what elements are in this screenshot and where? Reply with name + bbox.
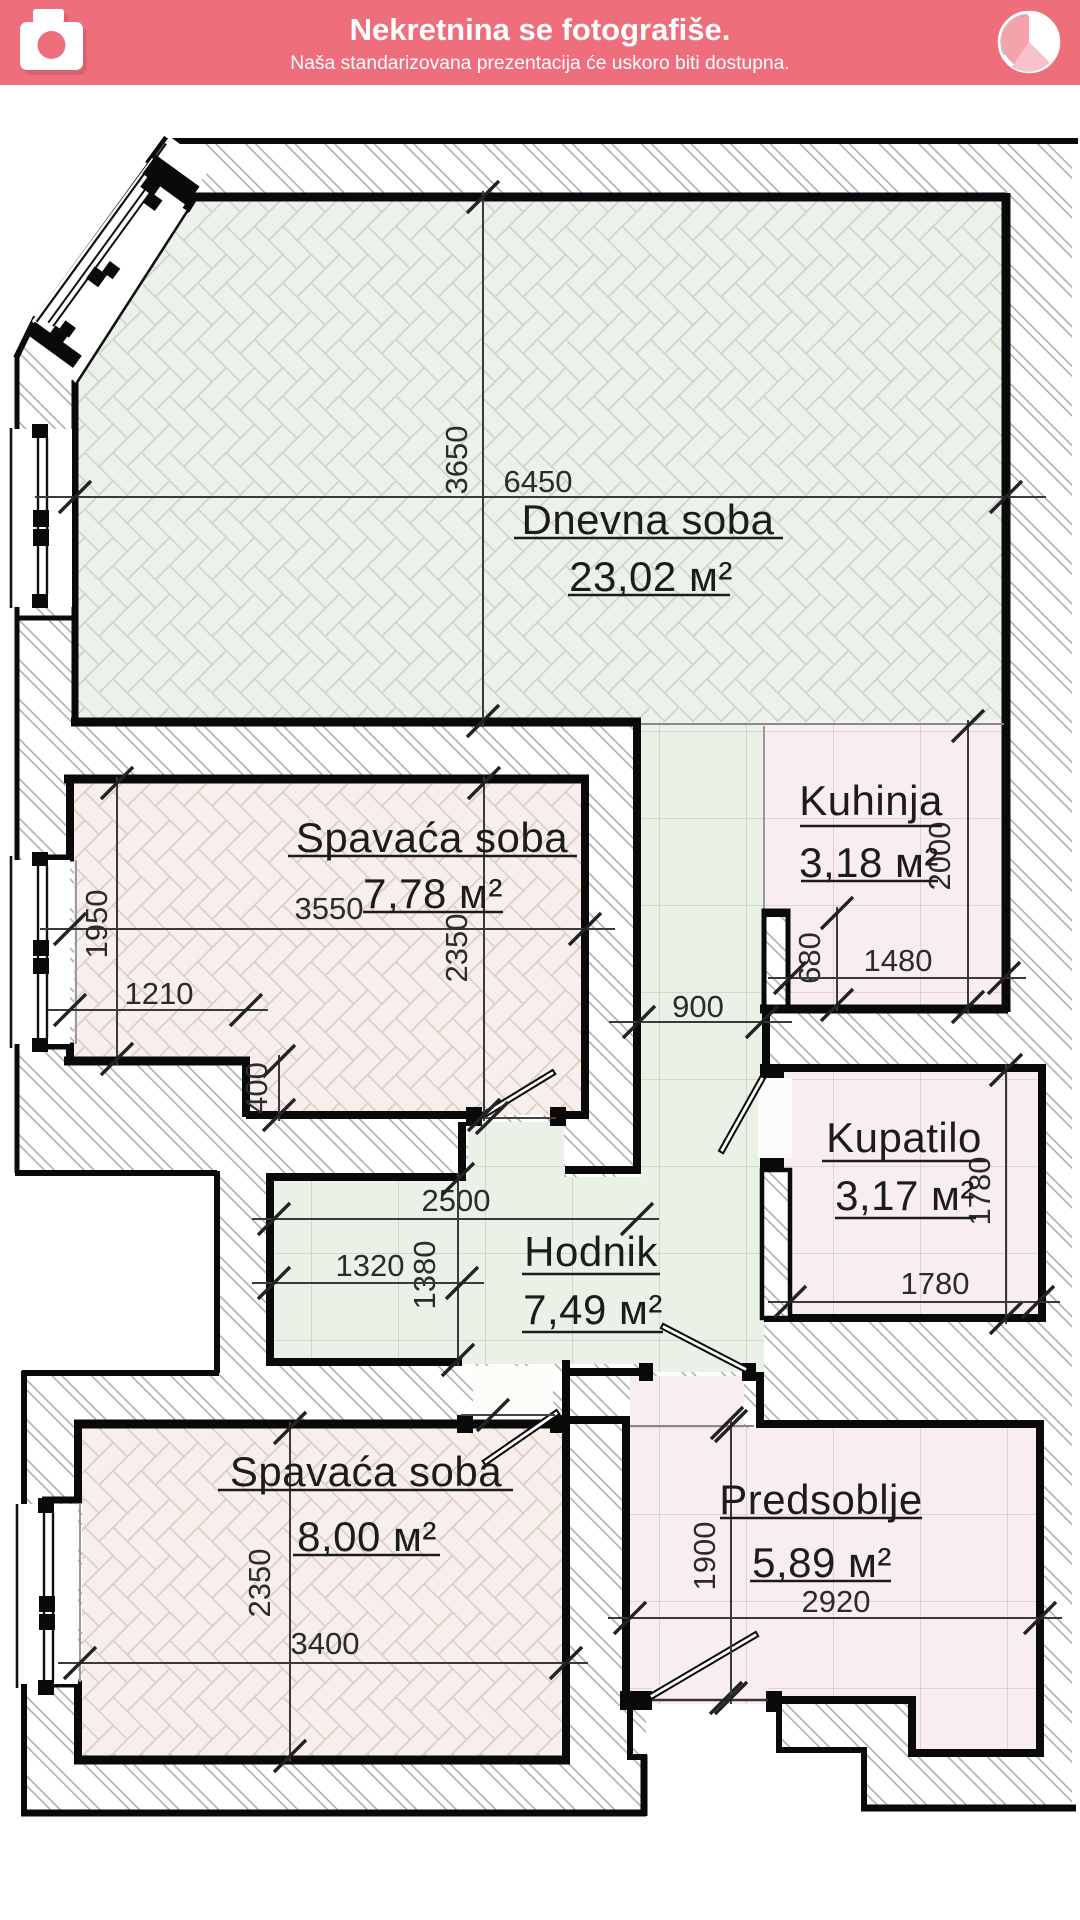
svg-text:6450: 6450 [504,464,573,499]
svg-text:1480: 1480 [864,943,933,978]
svg-text:680: 680 [792,932,827,984]
svg-text:1780: 1780 [901,1266,970,1301]
svg-text:1380: 1380 [407,1241,442,1310]
svg-text:Kuhinja: Kuhinja [799,777,943,824]
svg-text:23,02 м²: 23,02 м² [569,553,733,600]
svg-text:3550: 3550 [295,891,364,926]
svg-text:Spavaća soba: Spavaća soba [230,1448,502,1495]
svg-text:7,49 м²: 7,49 м² [523,1286,663,1333]
svg-text:2350: 2350 [439,914,474,983]
svg-text:1210: 1210 [125,976,194,1011]
svg-text:7,78 м²: 7,78 м² [363,870,503,917]
svg-text:1900: 1900 [687,1522,722,1591]
svg-text:3,17 м²: 3,17 м² [835,1172,975,1219]
svg-text:1320: 1320 [336,1248,405,1283]
svg-text:Predsoblje: Predsoblje [719,1476,922,1523]
svg-text:2920: 2920 [802,1584,871,1619]
svg-text:3400: 3400 [291,1626,360,1661]
svg-text:Hodnik: Hodnik [524,1228,658,1275]
svg-text:400: 400 [239,1062,274,1114]
svg-text:5,89 м²: 5,89 м² [752,1539,892,1586]
svg-text:Dnevna soba: Dnevna soba [521,496,774,543]
svg-text:3650: 3650 [439,426,474,495]
svg-text:Spavaća soba: Spavaća soba [296,814,568,861]
svg-text:1950: 1950 [79,890,114,959]
svg-text:900: 900 [672,989,724,1024]
svg-text:3,18 м²: 3,18 м² [799,839,939,886]
svg-text:8,00 м²: 8,00 м² [297,1513,437,1560]
svg-text:Kupatilo: Kupatilo [826,1114,982,1161]
svg-text:2350: 2350 [242,1549,277,1618]
svg-text:Naša standarizovana prezentaci: Naša standarizovana prezentacija će usko… [290,53,789,74]
svg-text:2500: 2500 [422,1183,491,1218]
svg-text:Nekretnina se fotografiše.: Nekretnina se fotografiše. [350,12,731,47]
